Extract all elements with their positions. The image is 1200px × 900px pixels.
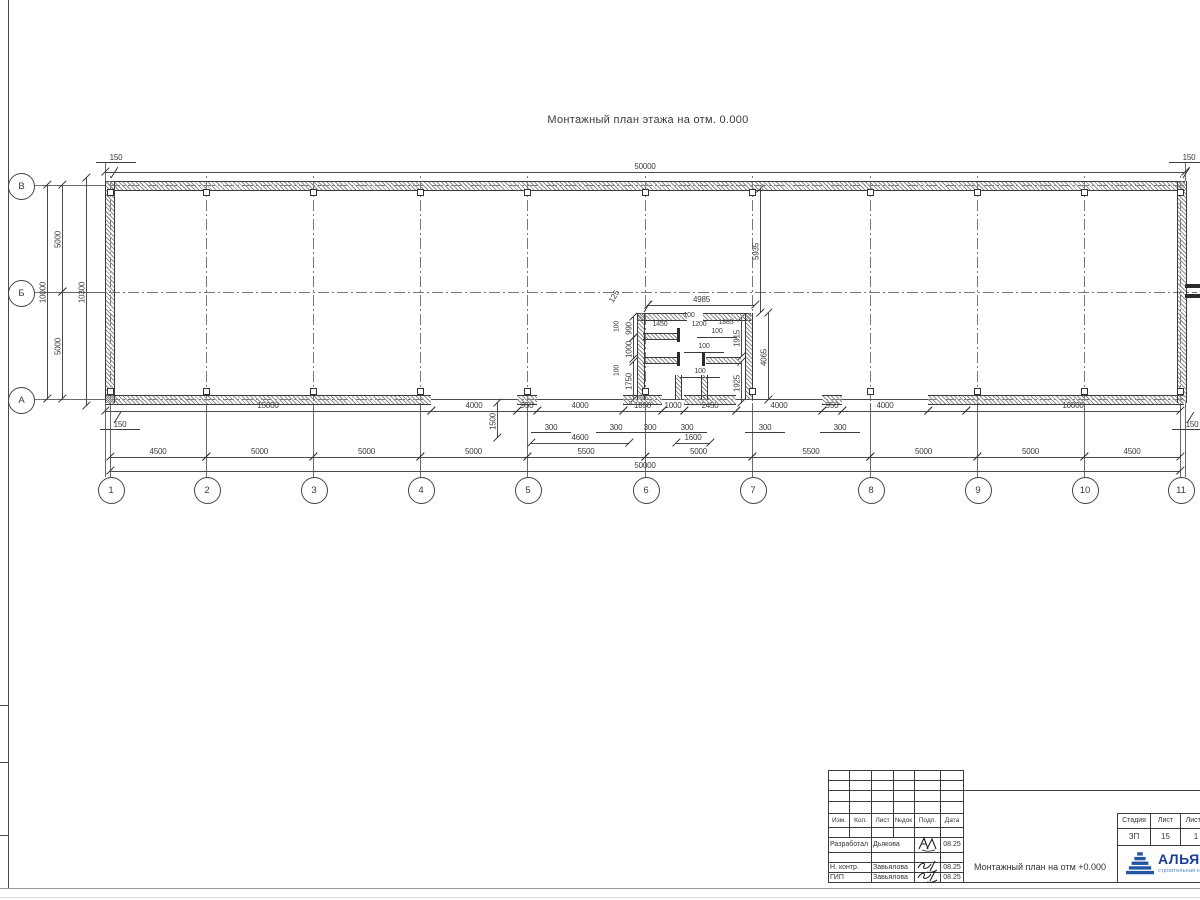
dimension-line (1084, 457, 1180, 458)
tb-header-data: Дата (941, 814, 963, 827)
dimension-label: 5500 (556, 447, 616, 456)
column-marker (974, 388, 981, 395)
dimension-line (527, 457, 645, 458)
axis-circle: 2 (194, 477, 221, 504)
dimension-label: 4000 (749, 401, 809, 410)
tb-role-developer: Разработал (830, 838, 872, 851)
wall-segment (105, 395, 431, 405)
tb-name-developer: Дьякова (873, 838, 913, 851)
dimension-label: 4000 (855, 401, 915, 410)
wall-segment (822, 395, 842, 405)
axis-circle: 3 (301, 477, 328, 504)
tb-header-podp: Подп. (915, 814, 940, 827)
floor-plan-drawing: 5000015000400095040001850100024504000950… (0, 0, 1200, 900)
dimension-line (966, 411, 1180, 412)
opening-line (842, 399, 928, 400)
dimension-label: 4600 (550, 433, 610, 442)
partition-wall (637, 313, 645, 400)
tb-stage-col: Стадия (1118, 814, 1150, 827)
column-marker (1081, 388, 1088, 395)
column-marker (1177, 189, 1184, 196)
annotation-label: 300 (667, 423, 707, 433)
dimension-label: 50000 (615, 162, 675, 171)
dimension-line (977, 457, 1084, 458)
tb-listov-value: 1 (1181, 829, 1200, 844)
wall-segment (105, 181, 115, 403)
opening-line (431, 399, 517, 400)
column-marker (642, 189, 649, 196)
column-marker (417, 189, 424, 196)
dimension-label: 1500 (489, 391, 498, 451)
tb-date-gip: 08.25 (941, 872, 963, 882)
opening-line (537, 399, 623, 400)
wall-segment (928, 395, 1184, 405)
tb-name-ncontr: Завьялова (873, 862, 913, 872)
column-marker (524, 189, 531, 196)
axis-circle: В (8, 173, 35, 200)
axis-circle: А (8, 387, 35, 414)
tb-header-ndok: №док (893, 814, 914, 827)
axis-circle: 8 (858, 477, 885, 504)
extension-line (105, 403, 106, 477)
annotation-label: 150 (96, 153, 136, 163)
axis-extension-line (752, 403, 753, 477)
tb-role-ncontr: Н. контр. (830, 862, 872, 872)
column-marker (107, 388, 114, 395)
door-jamb-bar (1185, 294, 1200, 298)
annotation-label: 100 (680, 368, 720, 378)
annotation-label: 100 (697, 328, 737, 338)
tb-header-kol: Кол. (850, 814, 871, 827)
dimension-label: 4065 (760, 327, 769, 387)
column-marker (974, 189, 981, 196)
tb-header-izm: Изм. (829, 814, 849, 827)
dimension-line (752, 457, 870, 458)
annotation-label: 100 (614, 307, 623, 347)
axis-circle: 6 (633, 477, 660, 504)
column-marker (417, 388, 424, 395)
extension-line (42, 185, 105, 186)
column-marker (749, 388, 756, 395)
annotation-label: 100 (614, 351, 623, 391)
wall-segment (1177, 181, 1187, 403)
axis-circle: 11 (1168, 477, 1195, 504)
dimension-line (537, 411, 623, 412)
dimension-label: 5000 (894, 447, 954, 456)
axis-extension-line (420, 403, 421, 477)
annotation-label: 1450 (640, 321, 680, 330)
dimension-label: 5500 (781, 447, 841, 456)
annotation-label: 150 (100, 420, 140, 430)
dimension-line (431, 411, 517, 412)
axis-circle: 5 (515, 477, 542, 504)
dimension-line (206, 457, 313, 458)
dimension-line (105, 172, 1185, 173)
partition-end-cap (702, 352, 705, 366)
column-marker (749, 189, 756, 196)
axis-extension-line (1084, 403, 1085, 477)
wall-segment (517, 395, 537, 405)
tb-date-developer: 08.25 (941, 838, 963, 851)
tb-header-list: Лист (872, 814, 893, 827)
column-marker (1081, 189, 1088, 196)
extension-line (42, 292, 105, 293)
dimension-label: 5000 (54, 316, 63, 376)
partition-wall (745, 313, 753, 400)
tb-doc-title: Монтажный план на отм +0.000 (966, 856, 1114, 878)
tb-list-col: Лист (1151, 814, 1180, 827)
dimension-line (928, 411, 966, 412)
annotation-label: 300 (745, 423, 785, 433)
column-marker (642, 388, 649, 395)
dimension-line (648, 305, 755, 306)
tb-date-ncontr: 08.25 (941, 862, 963, 872)
partition-wall (701, 375, 708, 400)
column-marker (524, 388, 531, 395)
dimension-label: 10000 (39, 263, 48, 323)
column-marker (867, 388, 874, 395)
drawing-sheet: { "plan_title": "Монтажный план этажа на… (0, 0, 1200, 900)
column-marker (203, 388, 210, 395)
company-logo-icon (1126, 849, 1154, 876)
partition-end-cap (677, 328, 680, 342)
dimension-line (313, 457, 420, 458)
wall-segment (684, 395, 736, 405)
column-marker (867, 189, 874, 196)
partition-wall (643, 357, 678, 364)
dimension-line (420, 457, 527, 458)
axis-circle: 10 (1072, 477, 1099, 504)
dimension-line (736, 411, 822, 412)
axis-extension-line (110, 403, 111, 477)
tb-stage-value: ЗП (1118, 829, 1150, 844)
column-marker (203, 189, 210, 196)
dimension-line (105, 411, 431, 412)
dimension-line (645, 457, 752, 458)
tb-role-gip: ГИП (830, 872, 872, 882)
column-marker (1177, 388, 1184, 395)
extension-line (42, 399, 105, 400)
partition-wall (703, 313, 751, 321)
dimension-label: 4985 (672, 295, 732, 304)
dimension-label: 50000 (615, 461, 675, 470)
dimension-label: 5000 (669, 447, 729, 456)
dimension-line (531, 443, 629, 444)
axis-circle: Б (8, 280, 35, 307)
annotation-label: 150 (1172, 420, 1200, 430)
tb-listov-col: Листов (1181, 814, 1200, 827)
company-logo-text: АЛЬЯНС (1158, 851, 1200, 867)
company-logo-subtext: строительная компания (1158, 867, 1200, 875)
annotation-label: 150 (1169, 153, 1200, 163)
dimension-line (110, 471, 1180, 472)
annotation-label: 300 (531, 423, 571, 433)
axis-extension-line (870, 403, 871, 477)
partition-wall (643, 333, 678, 340)
dimension-line (110, 457, 206, 458)
signature-icon (916, 835, 939, 852)
signature-icon (916, 870, 939, 883)
column-marker (310, 189, 317, 196)
partition-wall (675, 375, 682, 400)
dimension-label: 5000 (337, 447, 397, 456)
dimension-label: 10300 (78, 263, 87, 323)
dimension-label: 5935 (752, 222, 761, 282)
tb-name-gip: Завьялова (873, 872, 913, 882)
column-marker (107, 189, 114, 196)
partition-end-cap (677, 352, 680, 366)
axis-extension-line (977, 403, 978, 477)
dimension-line (842, 411, 928, 412)
axis-circle: 7 (740, 477, 767, 504)
axis-extension-line (1180, 403, 1181, 477)
dimension-line (684, 411, 736, 412)
dimension-label: 5000 (1001, 447, 1061, 456)
axis-circle: 4 (408, 477, 435, 504)
dimension-line (676, 443, 710, 444)
door-jamb-bar (1185, 284, 1200, 288)
dimension-label: 4500 (1102, 447, 1162, 456)
dimension-label: 1600 (663, 433, 723, 442)
axis-extension-line (527, 403, 528, 477)
dimension-label: 5000 (230, 447, 290, 456)
tb-list-value: 15 (1151, 829, 1180, 844)
annotation-label: 300 (630, 423, 670, 433)
extension-line (1185, 403, 1186, 477)
column-marker (310, 388, 317, 395)
dimension-line (870, 457, 977, 458)
annotation-label: 300 (820, 423, 860, 433)
axis-circle: 1 (98, 477, 125, 504)
title-block: Изм. Кол. Лист №док Подп. Дата Разработа… (828, 770, 1200, 882)
axis-extension-line (206, 403, 207, 477)
axis-circle: 9 (965, 477, 992, 504)
dimension-label: 4500 (128, 447, 188, 456)
dimension-label: 5000 (54, 209, 63, 269)
dimension-label: 4000 (550, 401, 610, 410)
axis-extension-line (313, 403, 314, 477)
partition-wall (706, 357, 741, 364)
